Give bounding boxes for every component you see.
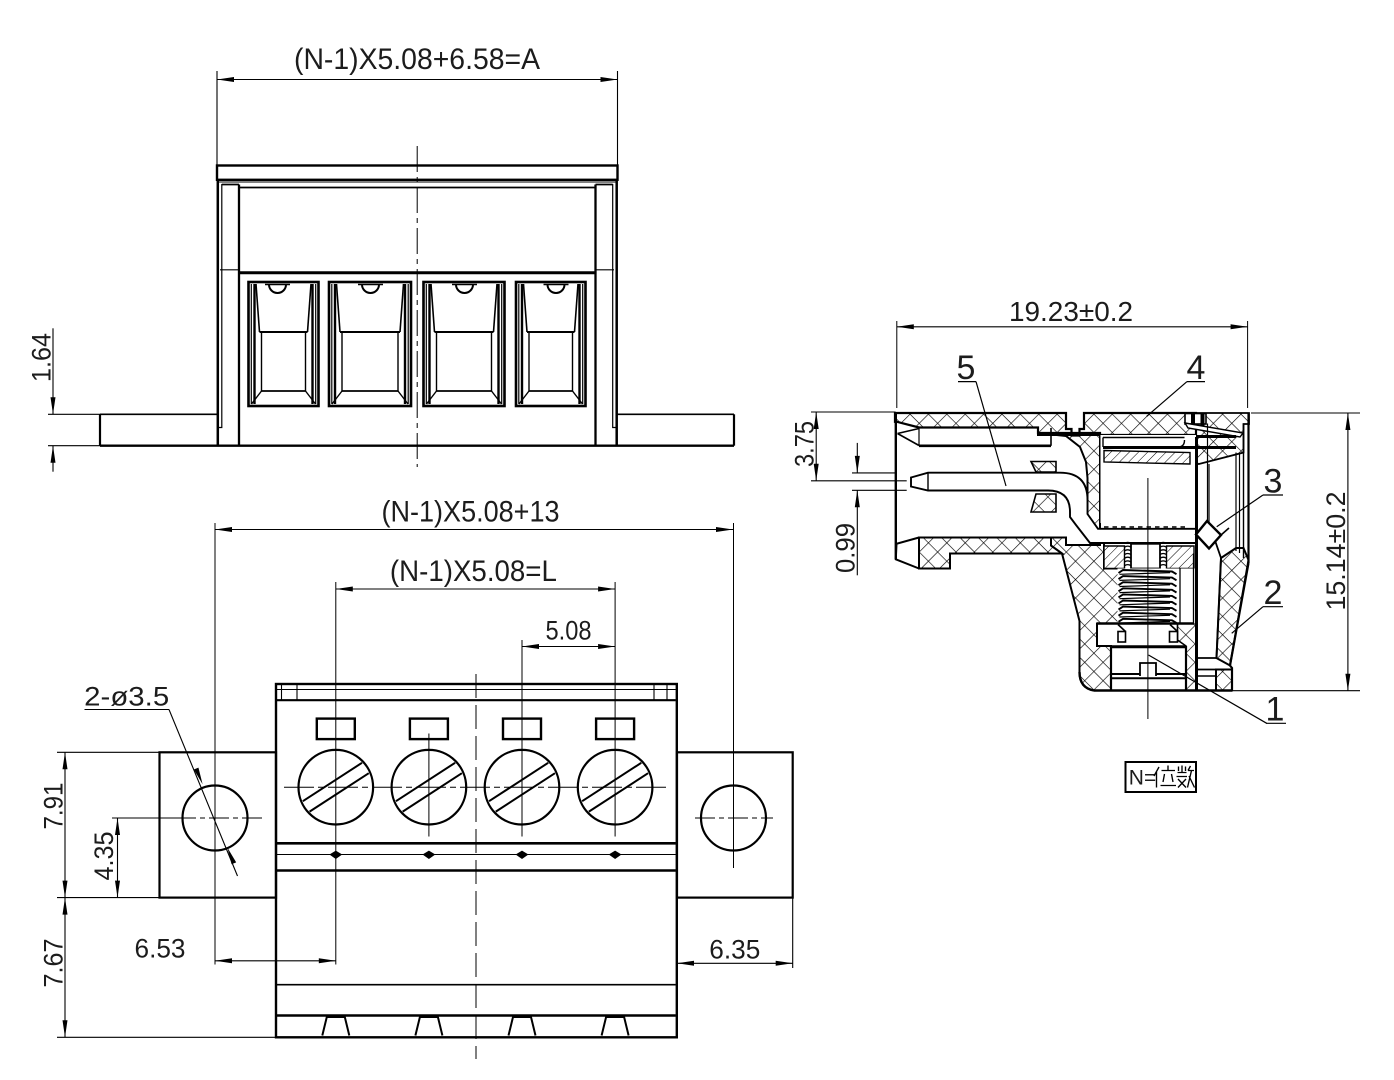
svg-text:(N-1)X5.08=L: (N-1)X5.08=L — [390, 555, 557, 588]
svg-text:2-ø3.5: 2-ø3.5 — [84, 682, 169, 712]
svg-text:3.75: 3.75 — [790, 421, 820, 467]
svg-text:15.14±0.2: 15.14±0.2 — [1321, 492, 1351, 611]
svg-text:1.64: 1.64 — [27, 333, 57, 382]
svg-text:19.23±0.2: 19.23±0.2 — [1009, 296, 1133, 327]
svg-text:4.35: 4.35 — [89, 832, 119, 881]
svg-text:7.67: 7.67 — [39, 939, 69, 988]
svg-text:0.99: 0.99 — [831, 523, 861, 573]
svg-text:6.35: 6.35 — [709, 935, 760, 965]
svg-text:(N-1)X5.08+13: (N-1)X5.08+13 — [382, 496, 560, 529]
svg-text:6.53: 6.53 — [135, 934, 186, 964]
svg-text:(N-1)X5.08+6.58=A: (N-1)X5.08+6.58=A — [294, 43, 540, 76]
svg-text:5.08: 5.08 — [546, 616, 592, 646]
svg-text:N=: N= — [1129, 767, 1156, 790]
svg-text:7.91: 7.91 — [39, 783, 69, 830]
